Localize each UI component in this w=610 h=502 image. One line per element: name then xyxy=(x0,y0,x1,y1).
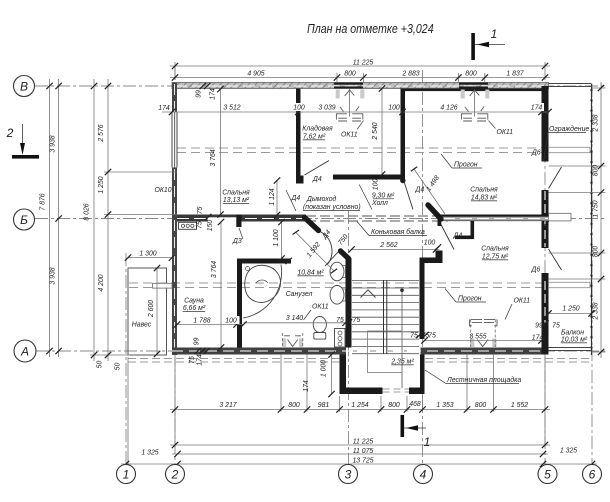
svg-text:1 000: 1 000 xyxy=(321,360,328,377)
svg-text:1 124: 1 124 xyxy=(269,188,276,205)
svg-text:1 325: 1 325 xyxy=(141,450,158,457)
svg-text:11 225: 11 225 xyxy=(353,439,374,446)
svg-text:99: 99 xyxy=(194,338,201,346)
svg-text:1 254: 1 254 xyxy=(351,402,368,409)
svg-text:6,66 м²: 6,66 м² xyxy=(183,305,206,312)
svg-text:174: 174 xyxy=(158,105,170,112)
svg-text:100: 100 xyxy=(388,105,400,112)
svg-text:800: 800 xyxy=(465,71,477,78)
svg-text:13,13 м²: 13,13 м² xyxy=(223,197,250,204)
svg-text:1 353: 1 353 xyxy=(436,402,453,409)
svg-text:А: А xyxy=(20,345,29,359)
svg-text:75: 75 xyxy=(410,333,418,340)
svg-text:800: 800 xyxy=(592,246,599,258)
svg-text:981: 981 xyxy=(318,402,330,409)
svg-text:12,75 м²: 12,75 м² xyxy=(482,254,509,261)
svg-text:75: 75 xyxy=(552,323,560,330)
svg-text:В: В xyxy=(20,80,28,94)
svg-text:Д3: Д3 xyxy=(232,238,242,245)
svg-text:3 938: 3 938 xyxy=(50,267,57,284)
svg-text:4 905: 4 905 xyxy=(247,71,264,78)
svg-text:Коньковая балка: Коньковая балка xyxy=(371,228,425,236)
svg-text:Дымоход: Дымоход xyxy=(306,195,337,203)
svg-text:3 938: 3 938 xyxy=(50,135,57,152)
svg-text:10,84 м²: 10,84 м² xyxy=(297,270,324,277)
svg-text:5: 5 xyxy=(544,468,551,482)
svg-text:1: 1 xyxy=(123,468,130,482)
svg-text:2 338: 2 338 xyxy=(592,302,599,320)
svg-text:(показан условно): (показан условно) xyxy=(303,204,361,211)
svg-text:2: 2 xyxy=(171,468,179,482)
svg-text:468: 468 xyxy=(409,401,421,408)
svg-text:4: 4 xyxy=(420,468,427,482)
svg-text:Навес: Навес xyxy=(132,322,152,329)
svg-text:75: 75 xyxy=(197,207,204,215)
svg-text:4 126: 4 126 xyxy=(440,105,457,112)
svg-text:Б: Б xyxy=(20,213,28,227)
svg-text:174: 174 xyxy=(197,354,204,366)
svg-text:Д6: Д6 xyxy=(531,150,541,157)
svg-text:1 250: 1 250 xyxy=(98,176,105,193)
svg-text:750: 750 xyxy=(337,233,350,246)
svg-text:50: 50 xyxy=(115,363,122,371)
svg-text:2 883: 2 883 xyxy=(401,71,419,78)
svg-text:8 026: 8 026 xyxy=(84,203,91,220)
svg-text:Д6: Д6 xyxy=(531,267,541,274)
svg-text:174: 174 xyxy=(210,88,217,100)
svg-text:2 540: 2 540 xyxy=(372,122,379,140)
svg-text:75: 75 xyxy=(336,317,344,324)
svg-text:1: 1 xyxy=(491,27,498,41)
svg-text:Санузел: Санузел xyxy=(286,291,313,298)
svg-text:3 555: 3 555 xyxy=(469,334,486,341)
svg-text:ОК11: ОК11 xyxy=(497,129,514,136)
svg-text:Д4: Д4 xyxy=(312,176,322,183)
svg-text:Прогон: Прогон xyxy=(458,296,482,303)
svg-text:Балкон: Балкон xyxy=(561,330,584,337)
svg-text:ОК11: ОК11 xyxy=(341,132,358,139)
svg-text:100: 100 xyxy=(293,105,305,112)
svg-text:4 200: 4 200 xyxy=(98,274,105,291)
svg-text:800: 800 xyxy=(475,402,487,409)
svg-text:3 512: 3 512 xyxy=(223,105,240,112)
svg-text:10,03 м²: 10,03 м² xyxy=(561,337,588,344)
svg-text:Холл: Холл xyxy=(371,200,388,207)
svg-text:50: 50 xyxy=(97,361,104,369)
svg-text:Ограждение: Ограждение xyxy=(549,125,589,133)
svg-text:75: 75 xyxy=(422,333,430,340)
svg-text:2: 2 xyxy=(6,126,14,140)
svg-text:1 300: 1 300 xyxy=(139,251,156,258)
svg-text:Д4: Д4 xyxy=(415,187,425,194)
svg-text:800: 800 xyxy=(592,165,599,177)
svg-text:6: 6 xyxy=(589,468,596,482)
svg-text:174: 174 xyxy=(532,335,544,342)
svg-text:75: 75 xyxy=(197,221,204,229)
svg-text:ОК11: ОК11 xyxy=(312,304,329,311)
svg-text:800: 800 xyxy=(388,402,400,409)
svg-text:1 837: 1 837 xyxy=(506,71,524,78)
svg-text:75: 75 xyxy=(353,317,361,324)
svg-text:100: 100 xyxy=(225,318,237,325)
svg-text:3 217: 3 217 xyxy=(219,402,237,409)
svg-text:1 100: 1 100 xyxy=(273,229,280,246)
svg-text:Прогон: Прогон xyxy=(454,162,478,169)
svg-text:1 788: 1 788 xyxy=(193,318,210,325)
svg-text:3 039: 3 039 xyxy=(318,105,335,112)
svg-text:7 876: 7 876 xyxy=(40,193,47,210)
svg-text:Д4: Д4 xyxy=(321,229,333,241)
svg-text:11 075: 11 075 xyxy=(353,448,374,455)
svg-text:3 764: 3 764 xyxy=(211,261,218,278)
svg-text:Кладовая: Кладовая xyxy=(302,125,333,133)
svg-text:3 140: 3 140 xyxy=(286,315,303,322)
svg-text:Спальня: Спальня xyxy=(481,246,509,253)
svg-text:100: 100 xyxy=(373,179,380,191)
svg-text:75: 75 xyxy=(189,356,196,364)
svg-text:174: 174 xyxy=(303,380,310,392)
svg-text:800: 800 xyxy=(344,71,356,78)
svg-text:1 750: 1 750 xyxy=(592,200,599,217)
svg-text:7,62 м²: 7,62 м² xyxy=(303,134,326,141)
svg-text:99: 99 xyxy=(196,90,203,98)
svg-text:1 250: 1 250 xyxy=(562,306,579,313)
svg-text:14,83 м²: 14,83 м² xyxy=(471,195,498,202)
svg-text:Д4: Д4 xyxy=(291,195,301,202)
svg-text:Д4: Д4 xyxy=(453,233,463,240)
svg-text:2,35 м²: 2,35 м² xyxy=(390,359,414,366)
svg-text:100: 100 xyxy=(424,240,436,247)
svg-text:3: 3 xyxy=(345,468,352,482)
svg-text:ОК11: ОК11 xyxy=(514,298,531,305)
svg-text:150: 150 xyxy=(207,220,214,232)
svg-text:Спальня: Спальня xyxy=(222,190,250,197)
svg-text:174: 174 xyxy=(531,105,543,112)
svg-text:2 338: 2 338 xyxy=(592,114,599,132)
svg-text:Лестничная площадка: Лестничная площадка xyxy=(446,376,521,384)
svg-text:Спальня: Спальня xyxy=(470,187,498,194)
svg-text:3 764: 3 764 xyxy=(210,149,217,166)
svg-text:2 600: 2 600 xyxy=(148,300,155,318)
svg-text:2 576: 2 576 xyxy=(98,124,105,142)
svg-text:13 725: 13 725 xyxy=(352,457,373,464)
svg-text:Сауна: Сауна xyxy=(184,298,204,305)
svg-text:План на отметке +3,024: План на отметке +3,024 xyxy=(307,21,434,36)
svg-text:2 562: 2 562 xyxy=(379,242,397,249)
svg-text:ОК10: ОК10 xyxy=(155,187,172,194)
svg-text:99: 99 xyxy=(535,323,543,330)
svg-text:1 498: 1 498 xyxy=(425,174,441,192)
svg-text:11 225: 11 225 xyxy=(353,60,374,67)
svg-text:1 552: 1 552 xyxy=(511,402,528,409)
svg-text:1: 1 xyxy=(424,435,431,449)
svg-text:800: 800 xyxy=(288,402,300,409)
svg-text:1 325: 1 325 xyxy=(560,448,577,455)
